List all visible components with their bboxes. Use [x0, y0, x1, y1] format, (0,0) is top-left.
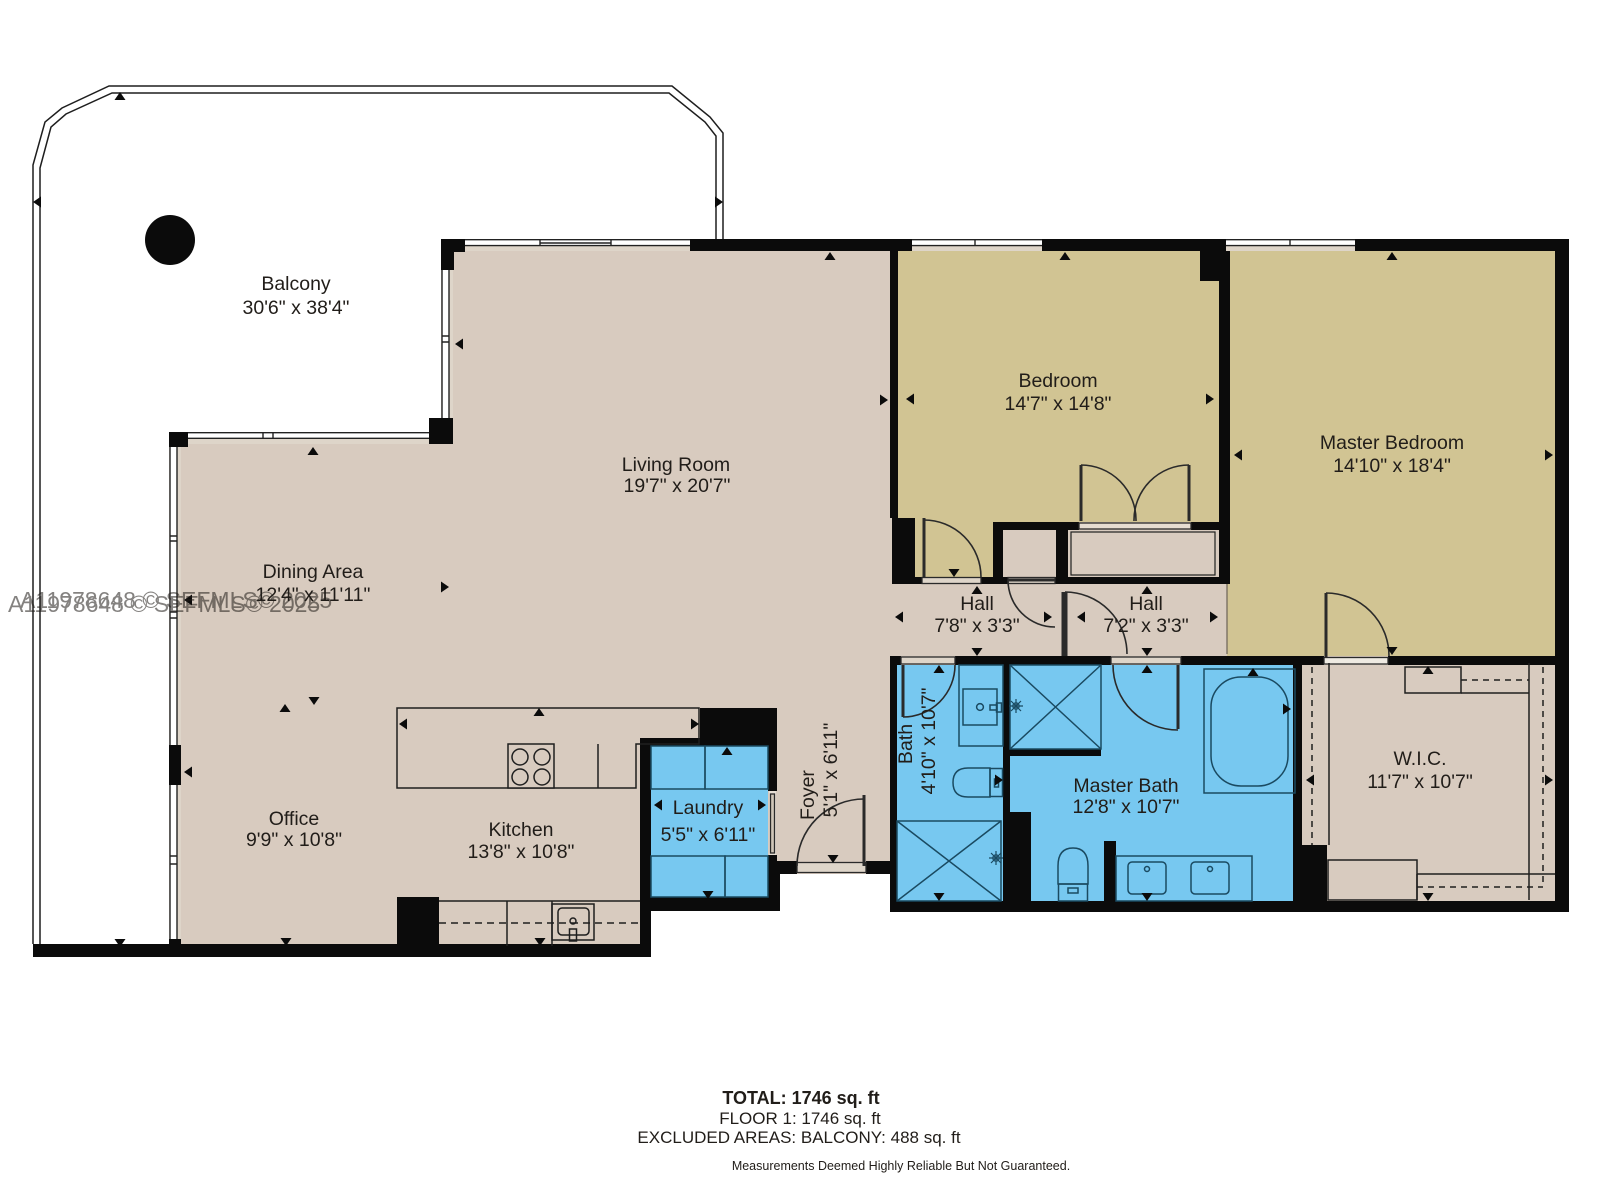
svg-text:Measurements Deemed Highly Rel: Measurements Deemed Highly Reliable But … — [732, 1159, 1070, 1173]
svg-text:Laundry: Laundry — [673, 797, 744, 819]
svg-text:Master Bedroom: Master Bedroom — [1320, 432, 1464, 454]
svg-text:Master Bath: Master Bath — [1073, 775, 1178, 797]
svg-text:19'7" x 20'7": 19'7" x 20'7" — [624, 475, 731, 497]
svg-text:5'5" x 6'11": 5'5" x 6'11" — [661, 824, 756, 846]
svg-text:Foyer: Foyer — [797, 770, 819, 820]
svg-text:4'10" x 10'7": 4'10" x 10'7" — [918, 687, 940, 794]
svg-text:13'8" x 10'8": 13'8" x 10'8" — [468, 841, 575, 863]
svg-text:11'7" x 10'7": 11'7" x 10'7" — [1367, 771, 1473, 793]
svg-text:9'9" x 10'8": 9'9" x 10'8" — [246, 829, 342, 851]
svg-text:Hall: Hall — [1129, 593, 1163, 615]
svg-text:14'10" x 18'4": 14'10" x 18'4" — [1333, 455, 1451, 477]
svg-text:5'1" x 6'11": 5'1" x 6'11" — [820, 723, 842, 818]
svg-text:Living Room: Living Room — [622, 454, 730, 476]
svg-text:Bedroom: Bedroom — [1018, 370, 1097, 392]
svg-text:W.I.C.: W.I.C. — [1393, 748, 1446, 770]
svg-text:Bath: Bath — [895, 724, 917, 764]
svg-text:Kitchen: Kitchen — [488, 819, 553, 841]
svg-text:Balcony: Balcony — [261, 273, 331, 295]
svg-text:Hall: Hall — [960, 593, 994, 615]
svg-text:30'6" x 38'4": 30'6" x 38'4" — [243, 297, 350, 319]
svg-text:EXCLUDED AREAS: BALCONY: 488 s: EXCLUDED AREAS: BALCONY: 488 sq. ft — [637, 1128, 960, 1147]
svg-text:12'8" x 10'7": 12'8" x 10'7" — [1073, 796, 1180, 818]
svg-text:A11978648 © SEFMLS© 2025: A11978648 © SEFMLS© 2025 — [20, 587, 332, 613]
svg-text:TOTAL: 1746 sq. ft: TOTAL: 1746 sq. ft — [722, 1088, 879, 1108]
svg-text:Dining Area: Dining Area — [263, 561, 364, 583]
svg-text:7'8" x 3'3": 7'8" x 3'3" — [934, 615, 1019, 637]
svg-text:7'2" x 3'3": 7'2" x 3'3" — [1103, 615, 1188, 637]
svg-text:Office: Office — [269, 808, 320, 830]
svg-text:FLOOR 1: 1746 sq. ft: FLOOR 1: 1746 sq. ft — [719, 1109, 881, 1128]
svg-text:14'7" x 14'8": 14'7" x 14'8" — [1005, 393, 1112, 415]
